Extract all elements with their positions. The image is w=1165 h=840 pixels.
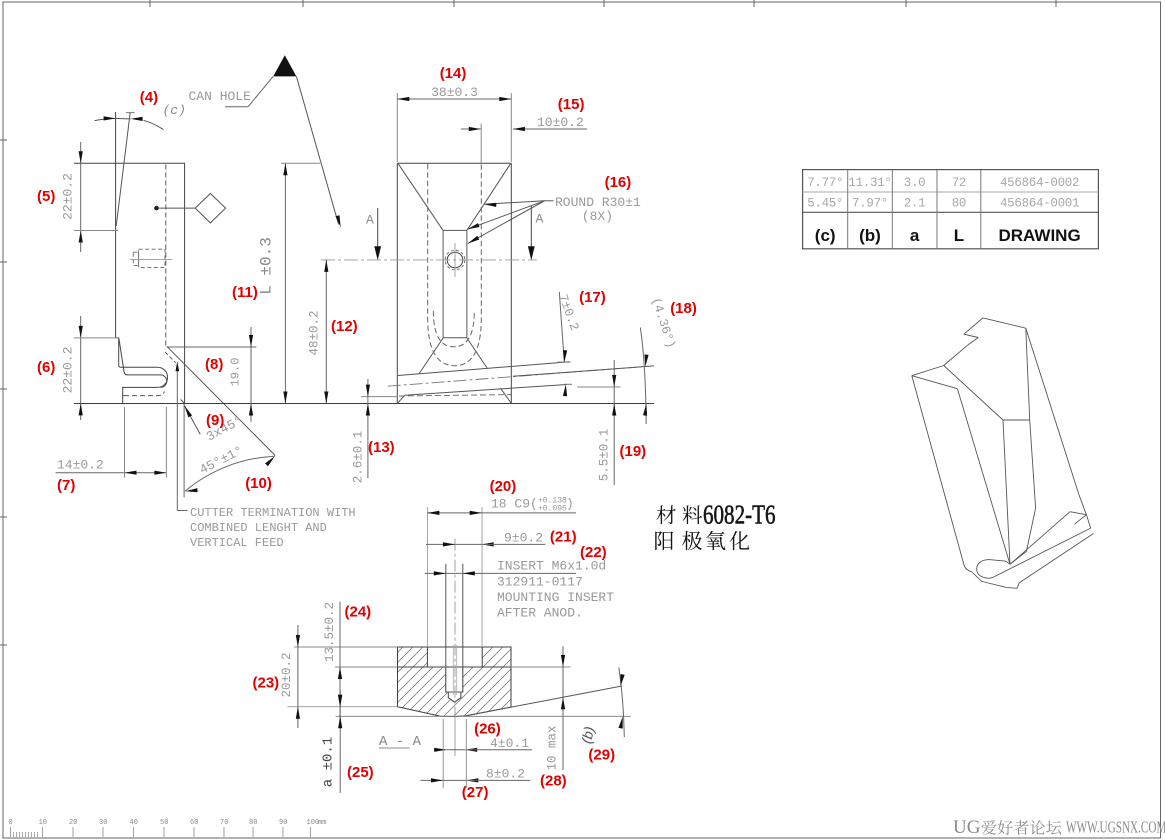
svg-text:(b): (b): [859, 226, 881, 245]
svg-text:(26): (26): [474, 721, 501, 738]
svg-text:(5): (5): [37, 188, 55, 205]
svg-text:(22): (22): [580, 544, 607, 561]
svg-text:22±0.2: 22±0.2: [61, 347, 76, 394]
svg-text:10±0.2: 10±0.2: [537, 115, 584, 130]
svg-text:ROUND R30±1: ROUND R30±1: [555, 195, 641, 210]
svg-text:312911-0117: 312911-0117: [497, 575, 583, 590]
svg-text:(8): (8): [205, 356, 223, 373]
svg-text:9±0.2: 9±0.2: [504, 531, 543, 546]
svg-text:(10): (10): [245, 475, 272, 492]
svg-text:(12): (12): [331, 318, 358, 335]
svg-text:456864-0002: 456864-0002: [1000, 176, 1079, 190]
svg-text:a: a: [910, 226, 920, 245]
svg-text:(21): (21): [550, 529, 577, 546]
svg-text:48±0.2: 48±0.2: [308, 310, 322, 355]
svg-text:5.45°: 5.45°: [807, 197, 843, 211]
svg-text:AFTER ANOD.: AFTER ANOD.: [497, 606, 583, 621]
svg-text:10 max: 10 max: [546, 725, 560, 770]
svg-text:(14): (14): [440, 65, 467, 82]
svg-text:CAN HOLE: CAN HOLE: [189, 89, 252, 104]
svg-text:(4): (4): [140, 89, 158, 106]
svg-text:(17): (17): [579, 289, 606, 306]
svg-text:45°±1°: 45°±1°: [197, 443, 246, 478]
svg-text:72: 72: [952, 176, 966, 190]
svg-text:38±0.3: 38±0.3: [431, 85, 478, 100]
svg-text:80: 80: [952, 197, 966, 211]
svg-text:20±0.2: 20±0.2: [280, 652, 294, 697]
svg-text:2.6±0.1: 2.6±0.1: [352, 431, 366, 484]
svg-text:(19): (19): [620, 443, 647, 460]
svg-text:(b): (b): [578, 725, 597, 745]
svg-text:VERTICAL FEED: VERTICAL FEED: [190, 536, 284, 550]
svg-text:MOUNTING INSERT: MOUNTING INSERT: [497, 590, 614, 605]
svg-text:80: 80: [249, 819, 257, 827]
svg-text:13.5±0.2: 13.5±0.2: [323, 602, 337, 662]
svg-text:6082-T6: 6082-T6: [703, 500, 776, 530]
svg-text:A: A: [366, 213, 374, 228]
svg-text:UG: UG: [953, 817, 981, 838]
svg-text:10: 10: [39, 819, 47, 827]
svg-text:19.0: 19.0: [229, 358, 243, 387]
svg-text:CUTTER TERMINATION WITH: CUTTER TERMINATION WITH: [190, 506, 356, 520]
svg-text:7.77°: 7.77°: [807, 176, 843, 190]
svg-text:(28): (28): [540, 773, 567, 790]
svg-text:90: 90: [279, 819, 287, 827]
svg-text:WWW.UGSNX.COM: WWW.UGSNX.COM: [1066, 818, 1165, 837]
svg-text:+0.095: +0.095: [538, 505, 567, 514]
svg-text:(13): (13): [368, 439, 395, 456]
svg-text:(c): (c): [815, 226, 836, 245]
svg-text:(29): (29): [588, 747, 615, 764]
svg-text:7.97°: 7.97°: [852, 197, 888, 211]
svg-text:11.31°: 11.31°: [848, 176, 891, 190]
svg-text:50: 50: [160, 819, 168, 827]
svg-text:8±0.2: 8±0.2: [486, 767, 525, 782]
svg-text:(15): (15): [558, 96, 585, 113]
svg-text:L: L: [954, 226, 964, 245]
svg-text:(24): (24): [345, 604, 372, 621]
svg-text:40: 40: [130, 819, 138, 827]
svg-text:(25): (25): [347, 764, 374, 781]
svg-text:(18): (18): [670, 300, 697, 317]
svg-text:a ±0.1: a ±0.1: [321, 737, 337, 787]
svg-text:0: 0: [9, 819, 13, 827]
svg-text:22±0.2: 22±0.2: [61, 173, 76, 220]
svg-text:2.1: 2.1: [904, 197, 926, 211]
svg-text:(8X): (8X): [582, 209, 613, 224]
svg-text:456864-0001: 456864-0001: [1000, 197, 1079, 211]
svg-text:20: 20: [69, 819, 77, 827]
svg-text:L ±0.3: L ±0.3: [258, 237, 276, 295]
svg-text:(9): (9): [206, 412, 224, 429]
svg-text:60: 60: [190, 819, 198, 827]
svg-text:14±0.2: 14±0.2: [57, 458, 104, 473]
svg-text:A: A: [536, 212, 544, 227]
svg-text:(23): (23): [253, 675, 280, 692]
svg-text:70: 70: [220, 819, 228, 827]
svg-text:(16): (16): [605, 174, 632, 191]
svg-text:DRAWING: DRAWING: [999, 226, 1081, 245]
svg-text:30: 30: [99, 819, 107, 827]
svg-text:4±0.1: 4±0.1: [490, 736, 529, 751]
svg-text:(20): (20): [490, 478, 517, 495]
svg-text:7±0.2: 7±0.2: [555, 293, 581, 333]
svg-text:COMBINED LENGHT AND: COMBINED LENGHT AND: [190, 521, 327, 535]
svg-text:(7): (7): [57, 477, 75, 494]
svg-text:(27): (27): [462, 784, 489, 801]
svg-text:(6): (6): [37, 359, 55, 376]
svg-text:5.5±0.1: 5.5±0.1: [598, 429, 612, 482]
svg-text:3.0: 3.0: [904, 176, 926, 190]
svg-text:(c): (c): [163, 103, 186, 118]
svg-text:(11): (11): [232, 284, 258, 301]
svg-text:mm: mm: [318, 819, 326, 827]
svg-text:): ): [566, 497, 574, 512]
svg-text:18 C9(: 18 C9(: [491, 497, 538, 512]
